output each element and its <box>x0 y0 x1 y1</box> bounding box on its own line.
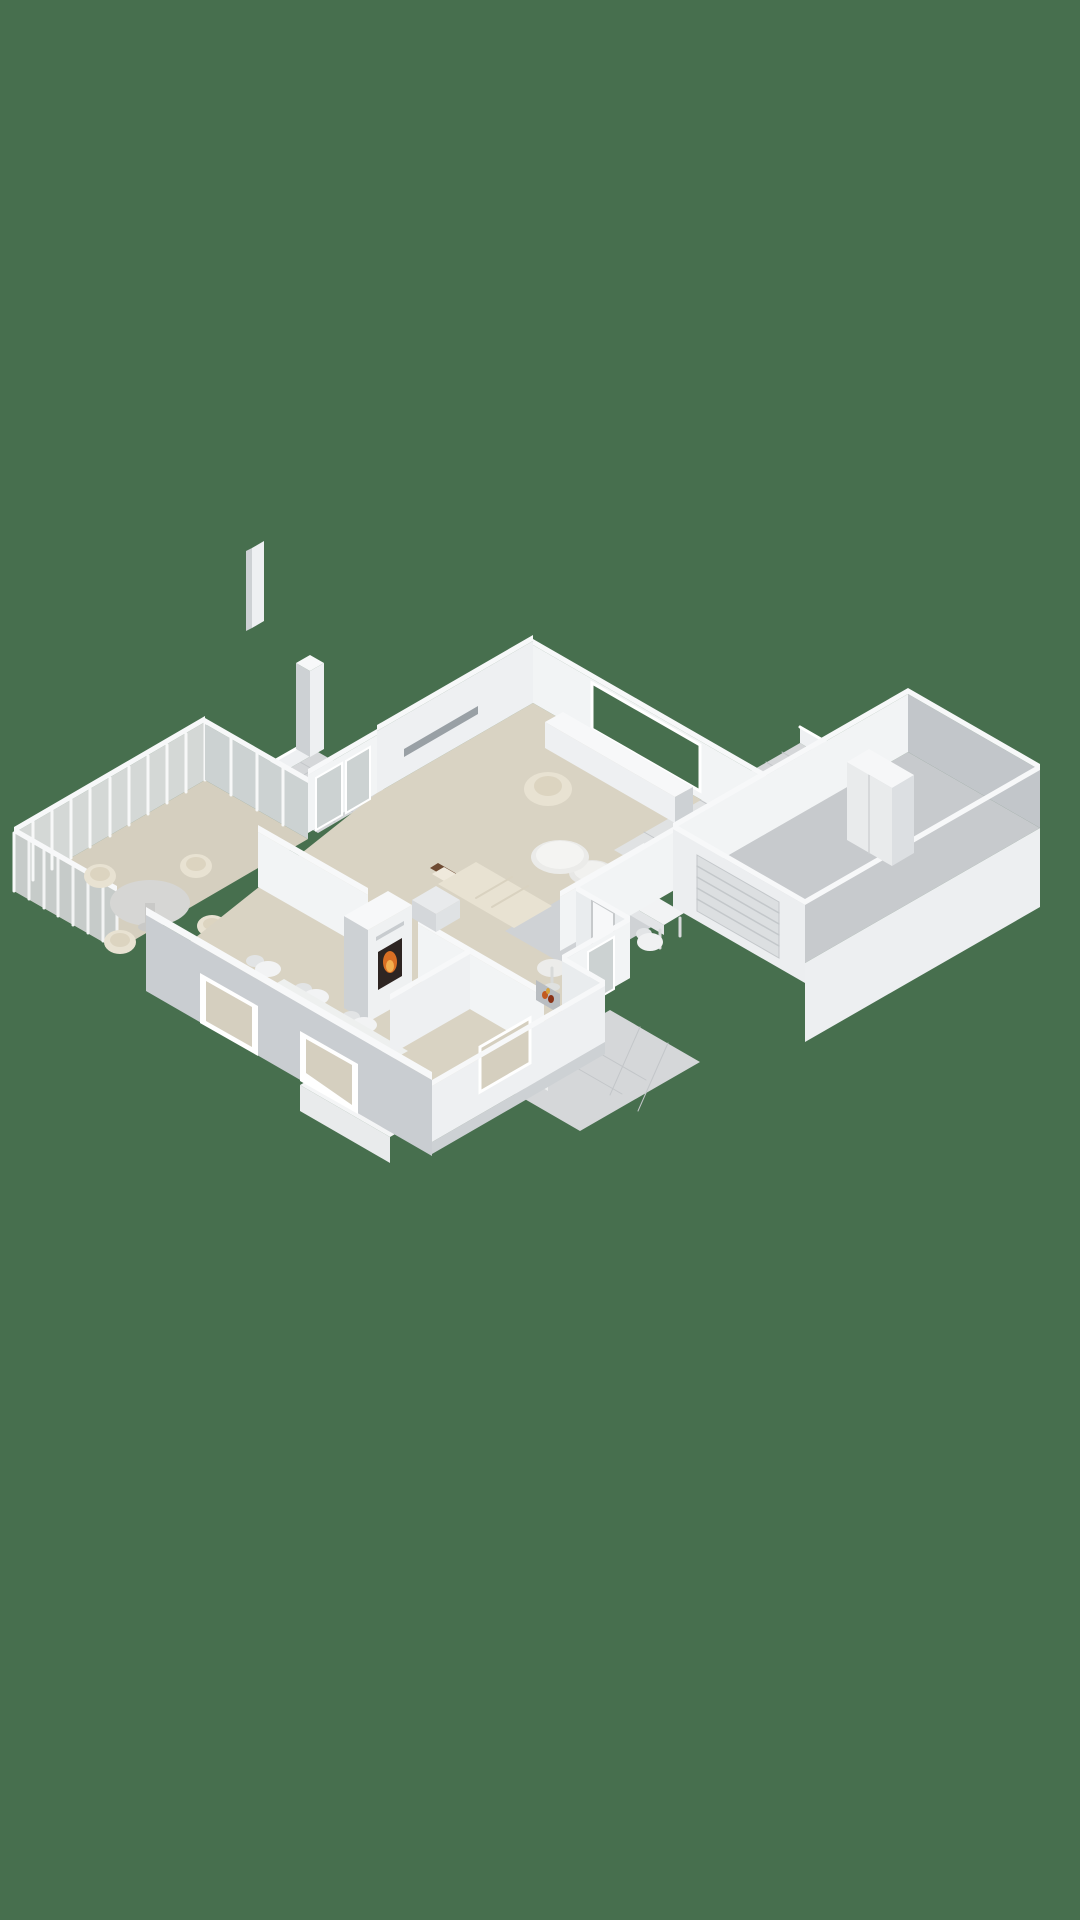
armchair-cushion <box>534 776 562 796</box>
coffee-table-top <box>536 841 584 869</box>
chimney-side <box>296 663 310 757</box>
wicker-chair-cushion <box>186 857 206 871</box>
floorplan-render <box>0 0 1080 1920</box>
chimney-flue-side <box>246 548 252 631</box>
chimney-front <box>310 663 324 757</box>
wicker-chair-cushion <box>90 867 110 881</box>
niche-decor <box>546 988 550 994</box>
desk-chair <box>637 933 663 951</box>
niche-decor <box>548 995 554 1003</box>
chimney-flue <box>252 541 264 628</box>
wicker-chair-cushion <box>110 933 130 947</box>
garage-cabinet-side <box>892 775 914 866</box>
stove-flame-core <box>386 960 394 972</box>
floorplan-stage <box>0 0 1080 1920</box>
stove-side <box>344 916 368 1022</box>
